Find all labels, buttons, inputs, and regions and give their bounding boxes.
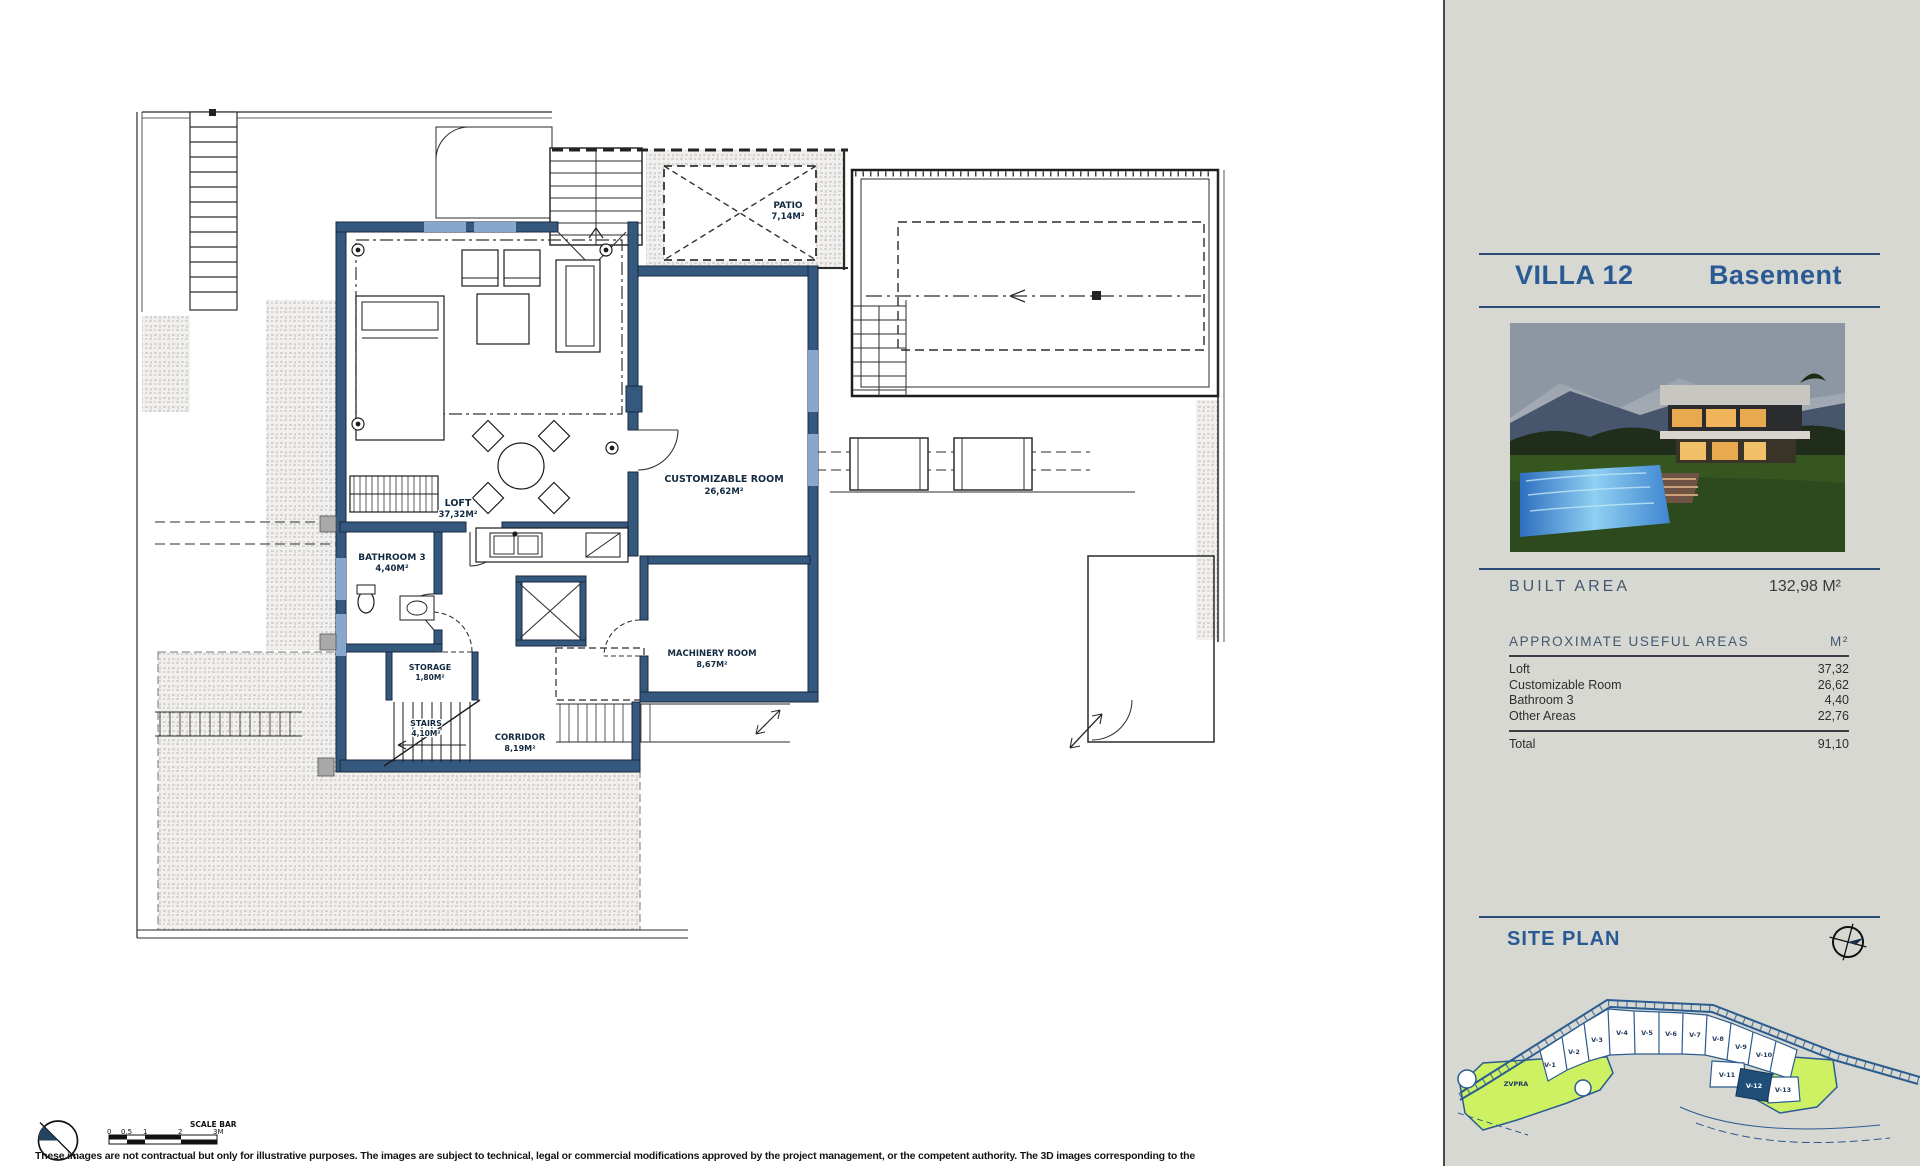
svg-text:V-9: V-9 bbox=[1735, 1043, 1747, 1051]
built-area-row: BUILT AREA 132,98 M² bbox=[1509, 578, 1841, 596]
svg-text:CUSTOMIZABLE ROOM: CUSTOMIZABLE ROOM bbox=[664, 474, 783, 485]
svg-text:26,62M²: 26,62M² bbox=[704, 487, 743, 497]
divider bbox=[1479, 916, 1880, 918]
floor-title: Basement bbox=[1709, 260, 1842, 291]
area-row-customizable: Customizable Room 26,62 bbox=[1509, 678, 1849, 694]
svg-text:V-13: V-13 bbox=[1775, 1086, 1791, 1094]
svg-text:7,14M²: 7,14M² bbox=[771, 212, 804, 222]
scale-tick: 0.5 bbox=[121, 1128, 132, 1136]
scale-tick: 3M bbox=[213, 1128, 224, 1136]
svg-text:V-4: V-4 bbox=[1616, 1029, 1628, 1037]
area-row-bathroom: Bathroom 3 4,40 bbox=[1509, 693, 1849, 709]
total-label: Total bbox=[1509, 737, 1535, 753]
total-value: 91,10 bbox=[1818, 737, 1849, 753]
row-label: Customizable Room bbox=[1509, 678, 1622, 694]
built-area-value: 132,98 M² bbox=[1769, 578, 1841, 596]
room-label-loft: LOFT 37,32M² bbox=[438, 498, 477, 520]
villa-title: VILLA 12 bbox=[1515, 260, 1634, 291]
svg-text:V-11: V-11 bbox=[1719, 1071, 1736, 1079]
svg-text:4,40M²: 4,40M² bbox=[375, 564, 408, 574]
site-plan-heading: SITE PLAN bbox=[1507, 928, 1620, 951]
table-rule bbox=[1509, 730, 1849, 732]
table-rule bbox=[1509, 655, 1849, 657]
svg-text:V-10: V-10 bbox=[1756, 1051, 1773, 1059]
site-compass-icon bbox=[1826, 920, 1870, 964]
villa-photo bbox=[1510, 323, 1845, 552]
title-row: VILLA 12 Basement bbox=[1479, 260, 1880, 291]
room-label-stairs: STAIRS 4,10M² bbox=[410, 719, 442, 738]
disclaimer-text: These images are not contractual but onl… bbox=[35, 1150, 1425, 1162]
svg-text:LOFT: LOFT bbox=[445, 498, 472, 509]
svg-text:V-5: V-5 bbox=[1641, 1029, 1653, 1037]
divider bbox=[1479, 568, 1880, 570]
site-plan-map: ZVPRA V-1 V-2 V-3 V-4 V-5 V-6 V-7 V-8 V-… bbox=[1450, 975, 1920, 1166]
room-label-storage: STORAGE 1,80M² bbox=[409, 663, 451, 682]
zone-label: ZVPRA bbox=[1504, 1080, 1529, 1088]
scale-tick: 0 bbox=[107, 1128, 111, 1136]
svg-text:MACHINERY ROOM: MACHINERY ROOM bbox=[667, 649, 756, 659]
area-row-other: Other Areas 22,76 bbox=[1509, 709, 1849, 725]
svg-text:STAIRS: STAIRS bbox=[410, 719, 442, 728]
useful-areas-table: APPROXIMATE USEFUL AREAS M² Loft 37,32 C… bbox=[1509, 634, 1849, 753]
floor-plan: PATIO 7,14M² LOFT 37,32M² CUSTOMIZABLE R… bbox=[0, 0, 1443, 1166]
brochure-page: PATIO 7,14M² LOFT 37,32M² CUSTOMIZABLE R… bbox=[0, 0, 1920, 1166]
scale-tick: 2 bbox=[178, 1128, 182, 1136]
row-label: Loft bbox=[1509, 662, 1530, 678]
room-label-customizable: CUSTOMIZABLE ROOM 26,62M² bbox=[664, 474, 783, 497]
room-label-corridor: CORRIDOR 8,19M² bbox=[495, 733, 546, 753]
svg-text:BATHROOM 3: BATHROOM 3 bbox=[358, 553, 425, 563]
built-area-label: BUILT AREA bbox=[1509, 578, 1630, 596]
room-label-machinery: MACHINERY ROOM 8,67M² bbox=[667, 649, 756, 669]
svg-text:PATIO: PATIO bbox=[773, 201, 803, 211]
svg-text:8,67M²: 8,67M² bbox=[696, 660, 728, 669]
room-label-bathroom: BATHROOM 3 4,40M² bbox=[358, 553, 425, 574]
svg-text:CORRIDOR: CORRIDOR bbox=[495, 733, 546, 743]
svg-text:V-3: V-3 bbox=[1591, 1036, 1603, 1044]
row-value: 22,76 bbox=[1818, 709, 1849, 725]
svg-text:4,10M²: 4,10M² bbox=[411, 729, 440, 738]
row-label: Other Areas bbox=[1509, 709, 1576, 725]
svg-text:V-7: V-7 bbox=[1689, 1031, 1701, 1039]
svg-text:V-6: V-6 bbox=[1665, 1030, 1677, 1038]
info-sidebar: VILLA 12 Basement bbox=[1443, 0, 1920, 1166]
areas-heading: APPROXIMATE USEFUL AREAS bbox=[1509, 634, 1749, 649]
highlighted-plot-label: V-12 bbox=[1746, 1082, 1762, 1090]
row-value: 4,40 bbox=[1825, 693, 1849, 709]
row-value: 26,62 bbox=[1818, 678, 1849, 694]
scale-tick: 1 bbox=[143, 1128, 147, 1136]
site-green-left bbox=[1460, 1057, 1613, 1130]
room-label-patio: PATIO 7,14M² bbox=[771, 201, 804, 222]
roundabout bbox=[1575, 1080, 1591, 1096]
area-row-loft: Loft 37,32 bbox=[1509, 662, 1849, 678]
svg-text:1,80M²: 1,80M² bbox=[415, 673, 444, 682]
row-label: Bathroom 3 bbox=[1509, 693, 1574, 709]
divider bbox=[1479, 253, 1880, 255]
areas-unit: M² bbox=[1830, 634, 1849, 649]
svg-text:STORAGE: STORAGE bbox=[409, 663, 451, 672]
roundabout bbox=[1458, 1070, 1476, 1088]
area-row-total: Total 91,10 bbox=[1509, 737, 1849, 753]
row-value: 37,32 bbox=[1818, 662, 1849, 678]
svg-text:V-2: V-2 bbox=[1568, 1048, 1580, 1056]
svg-text:V-1: V-1 bbox=[1544, 1061, 1556, 1069]
svg-text:37,32M²: 37,32M² bbox=[438, 510, 477, 520]
svg-text:V-8: V-8 bbox=[1712, 1035, 1724, 1043]
divider bbox=[1479, 306, 1880, 308]
svg-text:8,19M²: 8,19M² bbox=[504, 744, 536, 753]
